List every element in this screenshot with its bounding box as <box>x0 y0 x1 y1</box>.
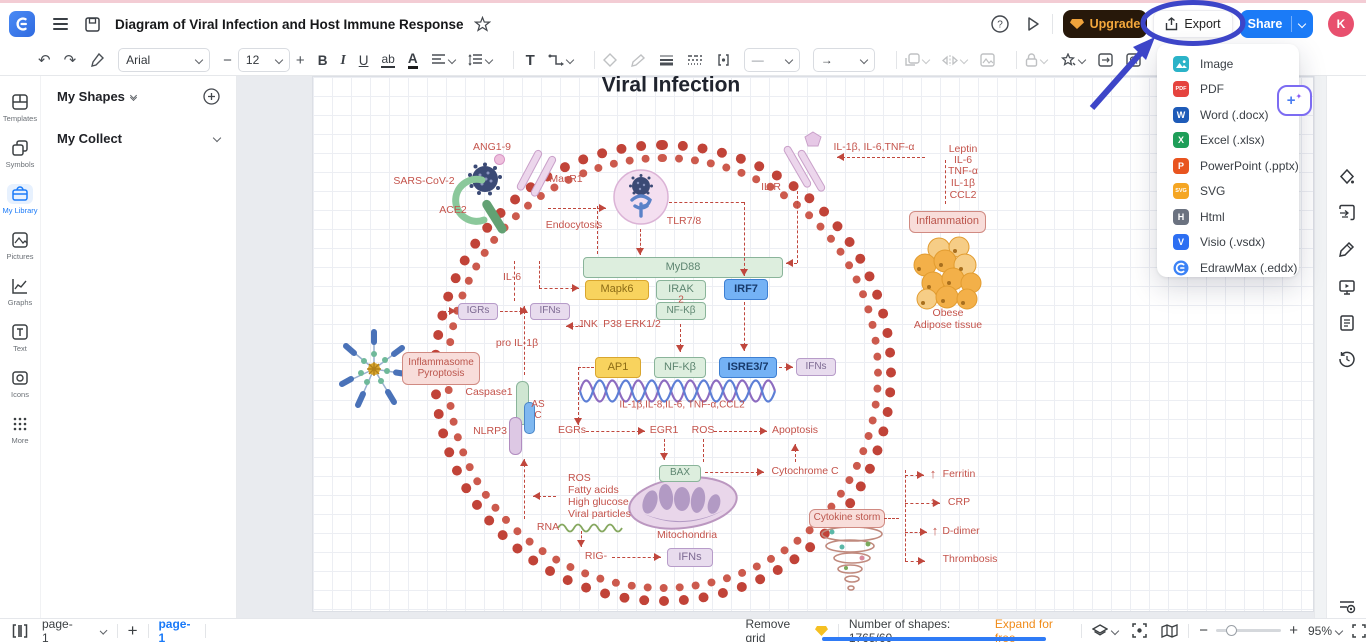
html-file-icon: H <box>1173 209 1189 225</box>
symbols-wand-button[interactable] <box>1060 53 1085 68</box>
zoom-level-select[interactable]: 95% <box>1308 624 1342 638</box>
export-menu-item-label: Word (.docx) <box>1200 108 1268 122</box>
font-size-decrease[interactable]: − <box>223 52 232 69</box>
ai-sparkle-icon: +✦ <box>1287 92 1302 109</box>
zoom-slider-knob[interactable] <box>1226 625 1237 636</box>
share-button[interactable]: Share <box>1240 10 1313 38</box>
page-tab[interactable]: page-1 <box>158 617 194 642</box>
text-icon <box>7 322 33 342</box>
lock-button[interactable] <box>1025 53 1047 67</box>
library-panel: My Shapes My Collect <box>40 76 237 618</box>
replace-image-button[interactable] <box>980 53 995 67</box>
svg-file-icon: SVG <box>1173 183 1189 199</box>
line-dash-button[interactable] <box>687 54 703 66</box>
share-dropdown-chevron-icon <box>1298 20 1306 28</box>
svg-text:?: ? <box>997 20 1003 31</box>
export-menu-item-visio-vsdx[interactable]: VVisio (.vsdx) <box>1157 230 1299 256</box>
redo-icon[interactable]: ↷ <box>64 51 77 69</box>
templates-icon <box>7 92 33 112</box>
export-menu-item-label: Image <box>1200 57 1233 71</box>
ai-assistant-button[interactable]: +✦ <box>1277 85 1312 116</box>
fill-color-button[interactable] <box>603 53 618 67</box>
find-replace-button[interactable] <box>1126 53 1141 67</box>
underline-button[interactable]: U <box>359 53 369 68</box>
add-page-button[interactable]: + <box>128 621 138 641</box>
my-collect-chevron-icon[interactable] <box>213 134 221 142</box>
pictures-icon <box>7 230 33 250</box>
premium-gem-icon <box>815 625 828 637</box>
export-dropdown-menu: ImagePDFPDFWWord (.docx)XExcel (.xlsx)PP… <box>1157 44 1299 277</box>
slide-list-icon[interactable] <box>1338 598 1356 616</box>
edrawmax-logo-icon[interactable] <box>9 11 35 37</box>
focus-view-icon[interactable] <box>1132 623 1147 638</box>
export-menu-item-label: Visio (.vsdx) <box>1200 235 1265 249</box>
flip-button[interactable] <box>942 54 967 67</box>
history-icon[interactable] <box>1338 350 1356 368</box>
export-menu-item-powerpoint-pptx[interactable]: PPowerPoint (.pptx) <box>1157 153 1299 179</box>
export-menu-item-label: PDF <box>1200 82 1224 96</box>
connector-tool-button[interactable] <box>548 53 573 67</box>
icons-icon <box>7 368 33 388</box>
my-collect-header[interactable]: My Collect <box>57 131 122 146</box>
sidebar-item-pictures[interactable]: Pictures <box>0 222 40 268</box>
more-icon <box>7 414 33 434</box>
presentation-icon[interactable] <box>1338 278 1356 296</box>
canvas-scrollbar[interactable] <box>1314 76 1326 618</box>
sidebar-item-icons[interactable]: Icons <box>0 360 40 406</box>
pen-annotation-icon[interactable] <box>1338 240 1356 258</box>
connection-point-button[interactable] <box>716 53 731 67</box>
status-bar: page-1 + page-1 Remove grid Number of sh… <box>0 618 1366 642</box>
export-menu-item-label: SVG <box>1200 184 1225 198</box>
export-menu-item-svg[interactable]: SVGSVG <box>1157 179 1299 205</box>
text-tool-button[interactable]: T <box>526 52 535 69</box>
image-file-icon <box>1173 56 1189 72</box>
layers-button[interactable] <box>1092 624 1118 638</box>
edrawmax-file-icon <box>1173 260 1189 276</box>
upgrade-button[interactable]: Upgrade <box>1063 10 1147 38</box>
page-setup-icon[interactable] <box>1338 204 1356 222</box>
font-size-increase[interactable]: + <box>296 52 305 69</box>
page-select[interactable]: page-1 <box>42 617 107 642</box>
export-button[interactable]: Export <box>1153 10 1233 38</box>
pdf-file-icon: PDF <box>1173 81 1189 97</box>
bold-button[interactable]: B <box>318 53 328 68</box>
strikethrough-button[interactable]: ab <box>381 52 394 68</box>
favorite-star-icon[interactable] <box>474 16 491 33</box>
document-title: Diagram of Viral Infection and Host Immu… <box>115 17 464 32</box>
font-color-button[interactable]: A <box>408 51 418 69</box>
powerpoint-file-icon: P <box>1173 158 1189 174</box>
line-weight-button[interactable] <box>659 54 674 66</box>
help-icon[interactable]: ? <box>990 14 1010 34</box>
sidebar-item-my-library[interactable]: My Library <box>0 176 40 222</box>
symbols-icon <box>7 138 33 158</box>
shapes-quota-progress-bar <box>822 637 1046 641</box>
line-color-button[interactable] <box>631 53 646 67</box>
zoom-out-button[interactable]: − <box>1199 622 1208 639</box>
right-sidebar <box>1326 76 1366 618</box>
graphs-icon <box>7 276 33 296</box>
app-header: Diagram of Viral Infection and Host Immu… <box>0 3 1366 45</box>
save-icon[interactable] <box>84 16 101 33</box>
present-play-icon[interactable] <box>1023 14 1043 34</box>
visio-file-icon: V <box>1173 234 1189 250</box>
header-divider <box>1052 14 1053 34</box>
font-family-select[interactable]: Arial <box>118 48 210 72</box>
menu-icon[interactable] <box>53 18 68 30</box>
undo-icon[interactable]: ↶ <box>38 51 51 69</box>
export-menu-item-label: EdrawMax (.eddx) <box>1200 261 1297 275</box>
style-fill-icon[interactable] <box>1338 168 1356 186</box>
sidebar-item-more[interactable]: More <box>0 406 40 452</box>
page-settings-button[interactable] <box>1098 53 1113 67</box>
zoom-in-button[interactable]: + <box>1289 622 1298 639</box>
align-button[interactable] <box>431 54 455 66</box>
add-shape-icon[interactable] <box>203 88 220 105</box>
export-menu-item-image[interactable]: Image <box>1157 51 1299 77</box>
zoom-slider[interactable] <box>1216 629 1281 632</box>
italic-button[interactable]: I <box>340 52 345 68</box>
my-library-icon <box>7 184 33 204</box>
my-shapes-header[interactable]: My Shapes <box>57 89 125 104</box>
sidebar-item-graphs[interactable]: Graphs <box>0 268 40 314</box>
avatar[interactable]: K <box>1328 11 1354 37</box>
export-menu-item-edrawmax-eddx[interactable]: EdrawMax (.eddx) <box>1157 255 1299 281</box>
arrow-style-select[interactable]: → <box>813 48 875 72</box>
collapse-double-chevron-icon[interactable] <box>131 93 136 100</box>
font-size-select[interactable]: 12 <box>238 48 290 72</box>
sidebar-item-symbols[interactable]: Symbols <box>0 130 40 176</box>
line-spacing-button[interactable] <box>468 54 492 66</box>
export-menu-item-label: Html <box>1200 210 1225 224</box>
line-style-select[interactable]: — <box>744 48 800 72</box>
sidebar-item-templates[interactable]: Templates <box>0 84 40 130</box>
page-frame-icon[interactable] <box>12 624 28 638</box>
excel-file-icon: X <box>1173 132 1189 148</box>
notes-icon[interactable] <box>1338 314 1356 332</box>
left-sidebar: Templates Symbols My Library Pictures Gr… <box>0 76 40 618</box>
navigator-map-icon[interactable] <box>1161 624 1178 638</box>
format-painter-icon[interactable] <box>89 52 105 68</box>
export-menu-item-html[interactable]: HHtml <box>1157 204 1299 230</box>
export-menu-item-label: PowerPoint (.pptx) <box>1200 159 1299 173</box>
export-menu-item-excel-xlsx[interactable]: XExcel (.xlsx) <box>1157 128 1299 154</box>
sidebar-item-text[interactable]: Text <box>0 314 40 360</box>
duplicate-button[interactable] <box>905 53 929 67</box>
remove-grid-button[interactable]: Remove grid <box>745 617 808 642</box>
fullscreen-icon[interactable] <box>1352 624 1366 638</box>
export-menu-item-label: Excel (.xlsx) <box>1200 133 1265 147</box>
word-file-icon: W <box>1173 107 1189 123</box>
